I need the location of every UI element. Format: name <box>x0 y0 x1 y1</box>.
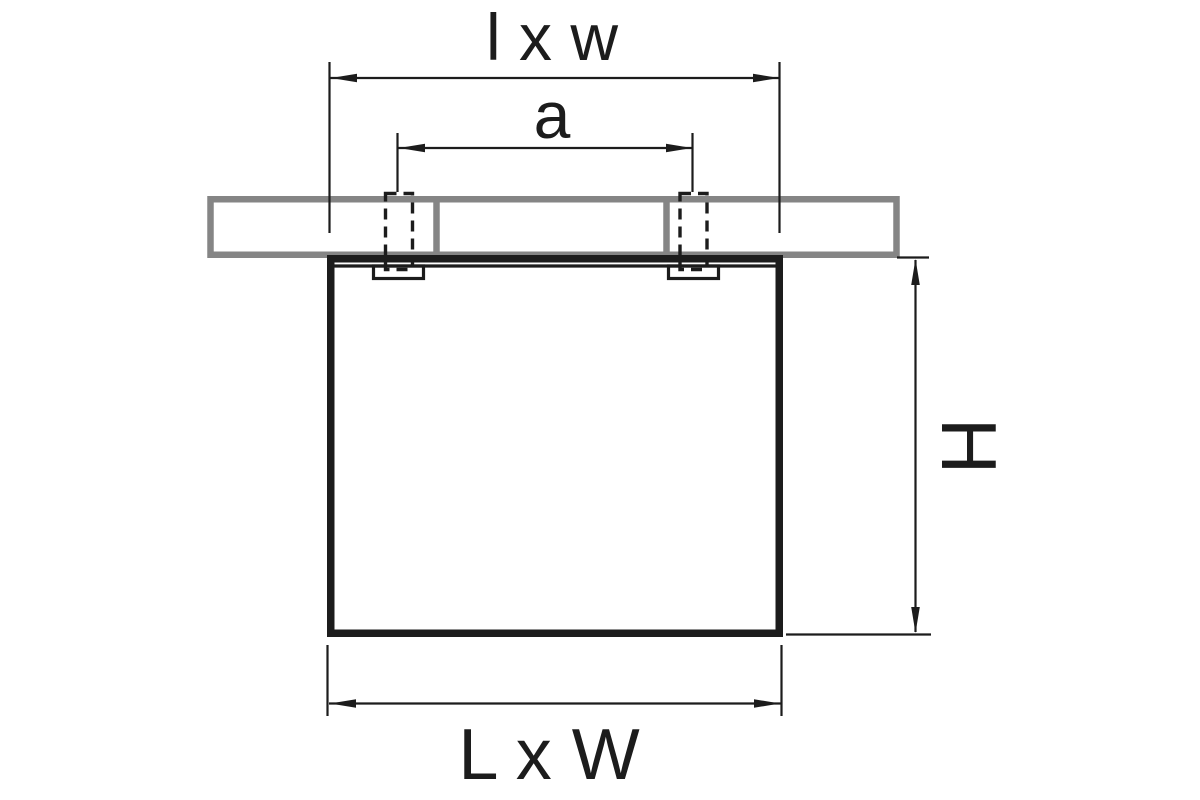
mounting-distance-label: a <box>534 78 571 152</box>
body-dimension-label: L x W <box>458 715 639 795</box>
luminaire-installation-diagram: l x w a H L x W <box>0 0 1200 800</box>
technical-drawing-page: l x w a H L x W <box>0 0 1200 800</box>
ceiling-section <box>211 196 897 258</box>
arrow-left-icon <box>399 144 425 153</box>
cutout-dimension-label: l x w <box>486 0 618 74</box>
arrow-left-icon <box>331 74 357 83</box>
fixture-body <box>331 259 780 634</box>
dimension-mounting-distance: a <box>398 78 694 192</box>
arrow-up-icon <box>911 259 920 285</box>
ceiling-hatched-band <box>211 199 897 255</box>
height-dimension-label: H <box>925 418 1013 474</box>
arrow-right-icon <box>754 699 780 708</box>
arrow-right-icon <box>753 74 779 83</box>
dimension-height: H <box>786 258 1013 635</box>
dimension-body: L x W <box>328 645 782 795</box>
arrow-down-icon <box>911 607 920 633</box>
arrow-left-icon <box>330 699 356 708</box>
fixture-outline <box>331 259 780 634</box>
arrow-right-icon <box>666 144 692 153</box>
